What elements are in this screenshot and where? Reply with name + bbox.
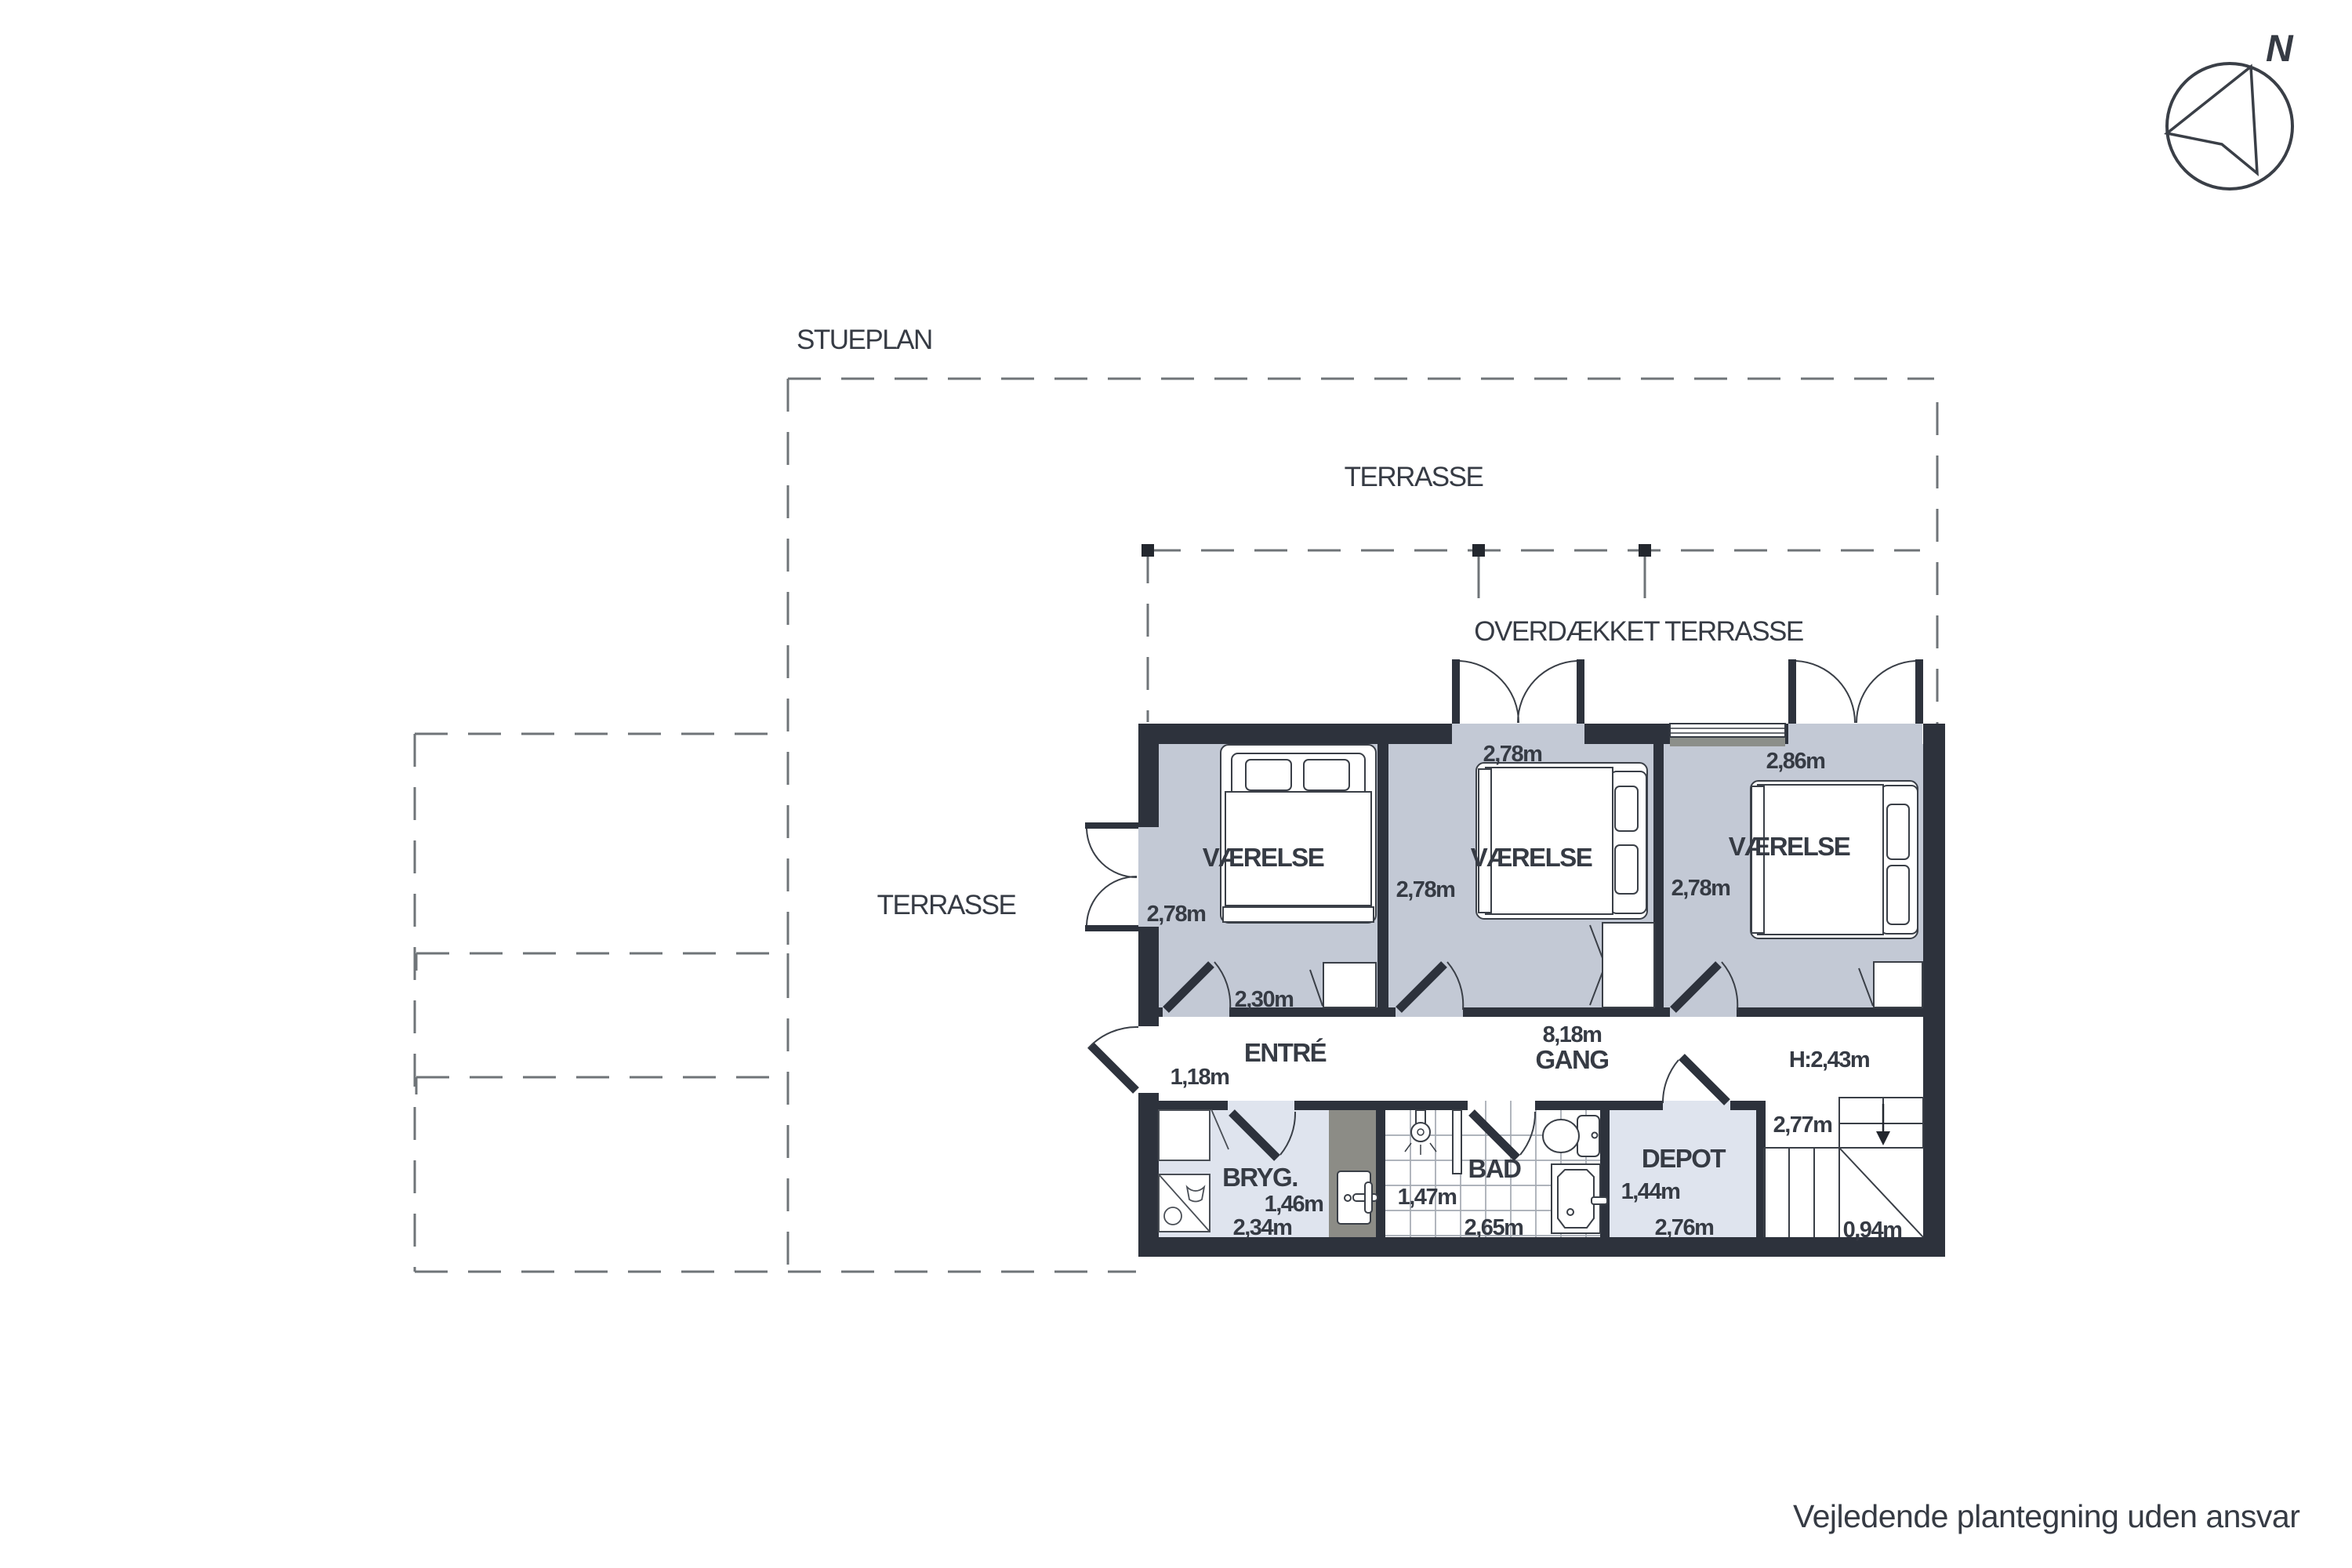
svg-text:DEPOT: DEPOT — [1642, 1144, 1726, 1173]
svg-text:Vejledende plantegning uden an: Vejledende plantegning uden ansvar — [1793, 1498, 2299, 1534]
svg-text:2,34m: 2,34m — [1233, 1215, 1292, 1240]
svg-text:TERRASSE: TERRASSE — [877, 890, 1016, 920]
svg-text:2,78m: 2,78m — [1483, 742, 1542, 767]
svg-text:2,78m: 2,78m — [1671, 876, 1730, 901]
svg-text:ENTRÉ: ENTRÉ — [1244, 1038, 1327, 1067]
svg-text:N: N — [2266, 28, 2294, 70]
svg-text:2,65m: 2,65m — [1465, 1215, 1523, 1240]
svg-text:2,30m: 2,30m — [1235, 987, 1294, 1012]
svg-text:1,44m: 1,44m — [1621, 1179, 1680, 1204]
svg-text:BRYG.: BRYG. — [1222, 1163, 1298, 1192]
svg-text:1,46m: 1,46m — [1265, 1192, 1323, 1217]
svg-text:VÆRELSE: VÆRELSE — [1471, 843, 1592, 872]
svg-text:0,94m: 0,94m — [1843, 1218, 1902, 1243]
svg-text:OVERDÆKKET TERRASSE: OVERDÆKKET TERRASSE — [1474, 616, 1803, 647]
svg-text:GANG: GANG — [1536, 1045, 1609, 1074]
svg-text:1,47m: 1,47m — [1398, 1185, 1457, 1210]
svg-text:2,86m: 2,86m — [1766, 749, 1825, 774]
svg-text:8,18m: 8,18m — [1543, 1022, 1602, 1047]
svg-text:STUEPLAN: STUEPLAN — [797, 325, 932, 355]
svg-text:H:2,43m: H:2,43m — [1789, 1047, 1869, 1073]
svg-text:2,78m: 2,78m — [1147, 902, 1206, 927]
svg-text:2,78m: 2,78m — [1396, 877, 1455, 902]
svg-text:BAD: BAD — [1468, 1154, 1522, 1183]
svg-text:VÆRELSE: VÆRELSE — [1729, 832, 1850, 861]
svg-text:TERRASSE: TERRASSE — [1345, 462, 1483, 492]
svg-text:1,18m: 1,18m — [1171, 1065, 1229, 1090]
svg-text:VÆRELSE: VÆRELSE — [1203, 843, 1324, 872]
svg-text:2,77m: 2,77m — [1773, 1112, 1832, 1138]
svg-text:2,76m: 2,76m — [1655, 1215, 1714, 1240]
